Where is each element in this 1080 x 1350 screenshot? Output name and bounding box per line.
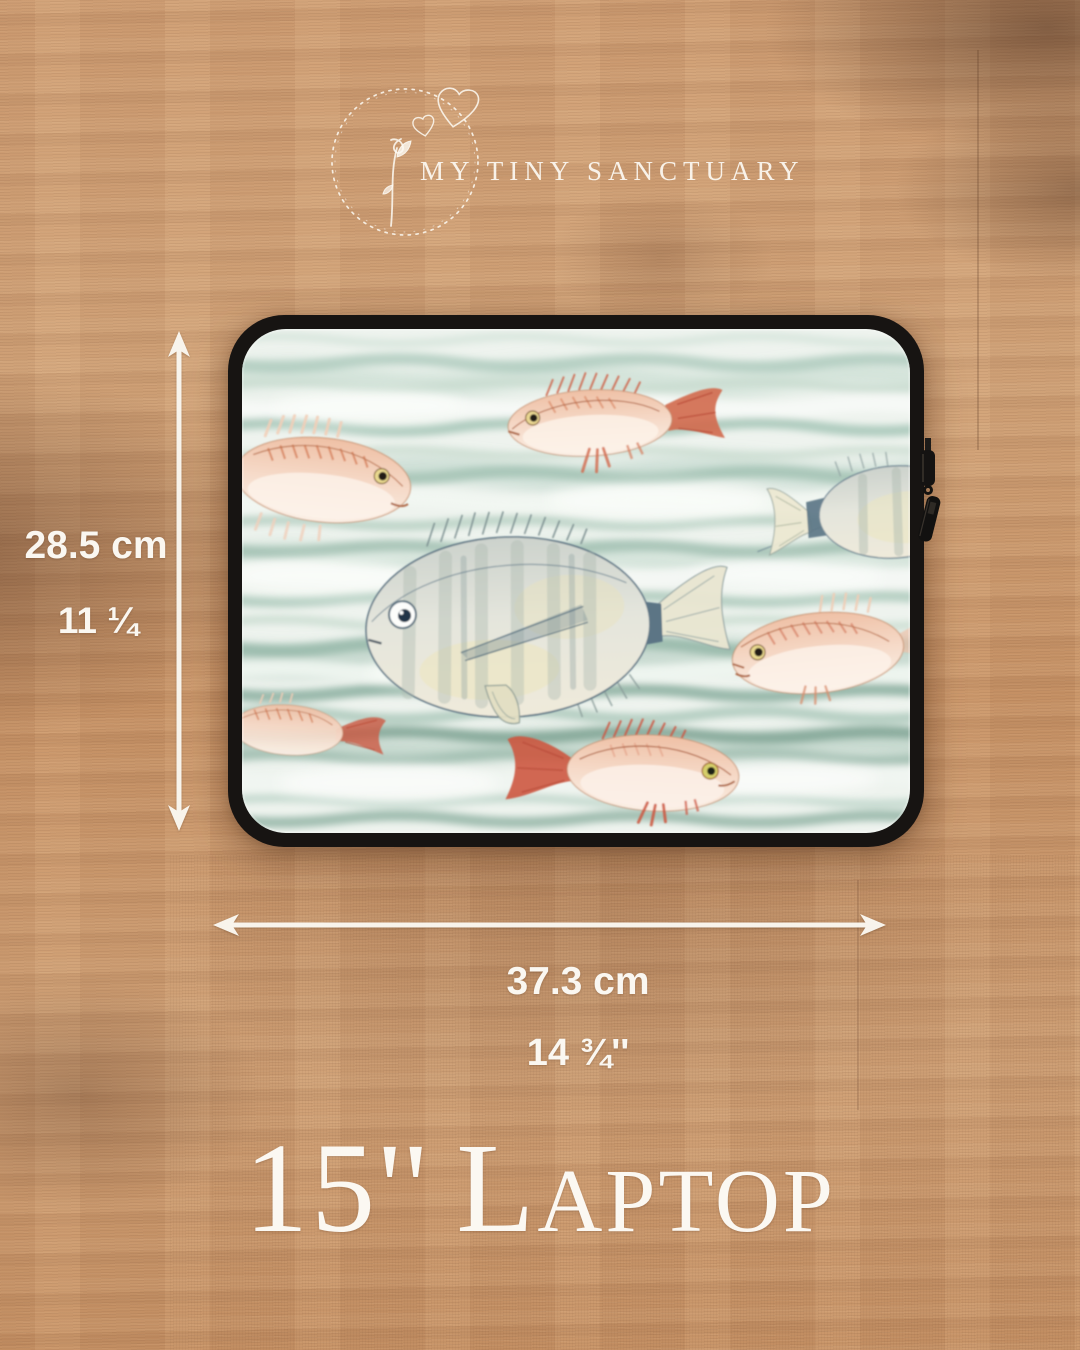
- product-size-caption: 15''Laptop: [0, 1118, 1080, 1259]
- product-mockup-scene: MY TINY SANCTUARY: [0, 0, 1080, 1350]
- wood-grain-overlay: [170, 855, 1080, 1350]
- product-size-value: 15'': [244, 1117, 430, 1259]
- laptop-sleeve-photo: [228, 315, 924, 847]
- wood-plank-seam: [857, 880, 859, 1110]
- small-heart-icon: [412, 115, 436, 138]
- horizontal-dimension-arrow-icon: [213, 914, 886, 936]
- brand-name: MY TINY SANCTUARY: [420, 156, 805, 187]
- product-type-value: Laptop: [456, 1117, 836, 1259]
- height-metric-label: 28.5 cm: [2, 524, 190, 568]
- heart-icon: [434, 85, 480, 130]
- height-imperial-label: 11 ¼: [2, 600, 194, 642]
- width-metric-label: 37.3 cm: [478, 960, 678, 1004]
- sleeve-fabric: [228, 329, 924, 833]
- width-imperial-label: 14 ¾'': [478, 1032, 678, 1075]
- vertical-dimension-arrow-icon: [168, 331, 190, 831]
- zipper-pull-icon: [910, 438, 954, 568]
- wood-plank-seam: [977, 50, 979, 450]
- sprout-icon: [383, 139, 411, 226]
